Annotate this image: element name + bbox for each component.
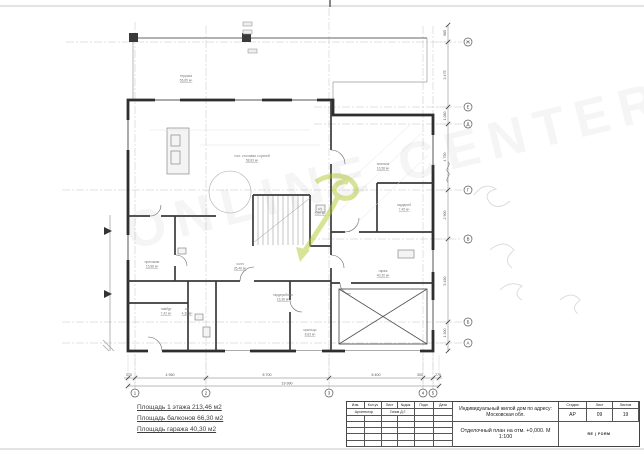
- curved-partition: [209, 171, 251, 213]
- titleblock-right: Стадия Лист Листов АР 09 19 RE | FORM: [559, 402, 639, 446]
- titleblock-cell: [415, 441, 434, 447]
- room-name: спальня: [377, 162, 390, 166]
- room-name: терраса: [180, 74, 192, 78]
- title-block: Изм. Кол.уч Лист №док. Подп. Дата Архите…: [346, 401, 640, 447]
- titleblock-cell: [347, 434, 365, 441]
- dimension-text: 270: [435, 373, 441, 377]
- titleblock-cell: [347, 441, 365, 447]
- room-area: 7,45 м²: [399, 208, 411, 212]
- signature-squiggles: [474, 186, 580, 314]
- annotations: 12345ЖЕДГВБА2704 9508 7008 40030027019 9…: [126, 30, 472, 397]
- titleblock-cell: [434, 434, 453, 441]
- titleblock-cell: [382, 434, 398, 441]
- area-summary: Площадь 1 этажа 213,46 м2 Площадь балкон…: [137, 402, 223, 435]
- axis-label: Б: [467, 320, 470, 325]
- dimension-text: 5 450: [443, 277, 447, 286]
- room-area: 5,60 м²: [315, 212, 327, 216]
- axis-label: Ж: [466, 40, 470, 45]
- area-line-1: Площадь 1 этажа 213,46 м2: [137, 402, 223, 413]
- grid-lines: [62, 8, 462, 388]
- dimension-text: 4 950: [166, 373, 175, 377]
- titleblock-cell: [365, 441, 382, 447]
- area-line-2: Площадь балконов 66,30 м2: [137, 413, 223, 424]
- axis-label: А: [467, 341, 470, 346]
- dimension-text: 2 900: [443, 211, 447, 220]
- room-name: тамбур: [161, 307, 172, 311]
- dimension-text: 300: [417, 373, 423, 377]
- floor-plan-drawing: 12345ЖЕДГВБА2704 9508 7008 40030027019 9…: [0, 0, 644, 455]
- col-header-podp: Подп.: [415, 402, 434, 409]
- room-name: гараж: [379, 269, 389, 273]
- dimension-text: 8 700: [263, 373, 272, 377]
- dimension-text: 1 300: [443, 329, 447, 338]
- project-title: Индивидуальный жилой дом по адресу: Моск…: [453, 402, 559, 422]
- room-name: с/у: [185, 307, 190, 311]
- axis-label: В: [467, 237, 470, 242]
- titleblock-cell: [398, 434, 415, 441]
- room-area: 35,46 м²: [234, 267, 247, 271]
- titleblock-center: Индивидуальный жилой дом по адресу: Моск…: [453, 402, 559, 446]
- col-header-data: Дата: [434, 402, 453, 409]
- room-name: гардероб: [397, 203, 411, 207]
- room-area: 40,30 м²: [377, 274, 390, 278]
- room-area: 8,83 м²: [305, 333, 317, 337]
- room-area: 7,42 м²: [161, 312, 173, 316]
- floor-texture: [150, 125, 428, 225]
- drawing-sheet: 12345ЖЕДГВБА2704 9508 7008 40030027019 9…: [0, 0, 644, 455]
- room-name: крыльцо: [304, 328, 317, 332]
- titleblock-cell: [434, 409, 453, 416]
- room-name: гост. столовая с кухней: [234, 154, 270, 158]
- room-name: с/у: [318, 207, 323, 211]
- col-header-list: Лист: [382, 402, 398, 409]
- column: [129, 33, 138, 42]
- terrace-outline: [129, 22, 427, 100]
- titleblock-cell: [434, 441, 453, 447]
- col-header-izm: Изм.: [347, 402, 365, 409]
- room-name: прихожая: [145, 260, 160, 264]
- dimension-text: 8 400: [372, 373, 381, 377]
- room-area: 15,88 м²: [146, 265, 159, 269]
- column: [242, 33, 251, 42]
- col-header-koluch: Кол.уч: [365, 402, 382, 409]
- sheet-title: Отделочный план на отм. +0,000. М 1:100: [453, 422, 559, 446]
- titleblock-revision-table: Изм. Кол.уч Лист №док. Подп. Дата Архите…: [347, 402, 453, 446]
- stairs: [253, 196, 310, 245]
- axis-label: Д: [467, 122, 470, 127]
- dimension-text: 1 080: [443, 112, 447, 121]
- col-header-ndok: №док.: [398, 402, 415, 409]
- area-line-3: Площадь гаража 40,30 м2: [137, 424, 223, 435]
- room-area: 4,38 м²: [182, 312, 194, 316]
- titleblock-cell: [415, 434, 434, 441]
- room-area: 16,36 м²: [277, 298, 290, 302]
- room-area: 16,56 м²: [377, 167, 390, 171]
- titleblock-cell: [365, 434, 382, 441]
- dimension-text: 270: [126, 373, 132, 377]
- dimension-text: 3 475: [443, 71, 447, 80]
- overall-dimension-text: 19 990: [282, 382, 293, 386]
- sheet-header: Лист: [587, 402, 613, 409]
- titleblock-cell: [398, 441, 415, 447]
- role-label: Архитектор: [347, 409, 382, 416]
- stage-value: АР: [559, 409, 587, 422]
- sheets-total: 19: [613, 409, 639, 422]
- sheets-header: Листов: [613, 402, 639, 409]
- stage-header: Стадия: [559, 402, 587, 409]
- dimension-text: 4 750: [443, 153, 447, 162]
- titleblock-cell: [415, 409, 434, 416]
- room-area: 58,83 м²: [246, 159, 259, 163]
- company-logo: RE | FORM: [559, 422, 639, 446]
- room-area: 56,85 м²: [180, 79, 193, 83]
- titleblock-cell: [382, 441, 398, 447]
- garage-parking-mark: [339, 289, 427, 344]
- dimension-text: 985: [443, 30, 447, 36]
- author-name: Гипов Д.Г.: [382, 409, 415, 416]
- sheet-number: 09: [587, 409, 613, 422]
- left-porch: [103, 215, 114, 351]
- room-name: холл: [236, 262, 243, 266]
- watermark-swirl: [296, 176, 356, 262]
- axis-label: Е: [467, 105, 470, 110]
- room-name: гардеробная: [273, 293, 293, 297]
